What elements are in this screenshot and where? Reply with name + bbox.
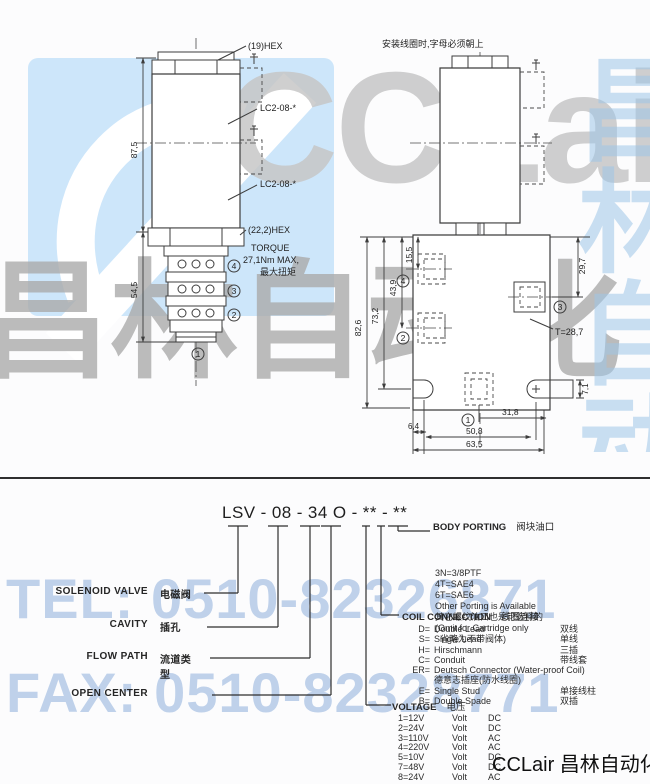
svg-text:2: 2 — [232, 310, 237, 320]
coil-option-cn: 三插 — [560, 645, 596, 655]
voltage-option-unit: Volt — [452, 773, 480, 783]
terminal-mark-icon — [250, 126, 258, 136]
body-porting-option: 4T=SAE4 — [435, 579, 554, 590]
install-note: 安装线圈时,字母必须朝上 — [382, 38, 484, 49]
body-porting-option: 6T=SAE6 — [435, 590, 554, 601]
svg-text:1: 1 — [466, 415, 471, 425]
dim-holes: 50,8 — [466, 426, 483, 436]
hex-top-label: (19)HEX — [248, 41, 283, 51]
svg-text:3: 3 — [558, 302, 563, 312]
label-solenoid-valve-en: SOLENOID VALVE — [0, 586, 148, 601]
dim-total-height: 82,6 — [353, 319, 363, 336]
label-open-center-en: OPEN CENTER — [0, 688, 148, 699]
coil-option-en: Conduit — [434, 655, 556, 665]
coil-option-en: Single Lead — [434, 634, 556, 644]
dim-right-height: 29,7 — [577, 257, 587, 274]
svg-text:1: 1 — [196, 349, 201, 359]
dim-coil-height: 87,5 — [129, 141, 139, 158]
svg-text:3: 3 — [232, 286, 237, 296]
coil-option-code: ER= — [402, 665, 430, 675]
dim-h4: 15,5 — [404, 246, 414, 263]
dim-h3: 43,9 — [388, 279, 398, 296]
coil-connection-options: D= Double Lead 双线 S= Single Lead 单线 H= H… — [402, 624, 596, 706]
port-2-badge: 2 — [228, 309, 240, 321]
coil-option-code: E= — [402, 686, 430, 696]
label-flow-path-cn: 流道类型 — [160, 651, 200, 681]
label-open-center: OPEN CENTER — [0, 688, 200, 699]
coil-connection-title-cn: 线圈连接 — [501, 612, 539, 623]
port-1-badge: 1 — [462, 414, 474, 426]
coil-option-en: Single Stud — [434, 686, 556, 696]
label-cavity-cn: 插孔 — [160, 619, 200, 634]
dim-stub: 7,1 — [581, 383, 590, 395]
coil-option-code: D= — [402, 624, 430, 634]
coil-body — [440, 68, 520, 223]
port-4-badge: 4 — [397, 275, 409, 287]
valve-side-view-drawing: (19)HEX LC2-08-* LC2-08-* (22,2)HEX TORQ… — [100, 30, 350, 410]
cavity-thread-label-1: LC2-08-* — [260, 103, 297, 113]
body-porting-title-cn: 阀块油口 — [516, 522, 554, 533]
svg-text:4: 4 — [232, 261, 237, 271]
coil-option-code: S= — [402, 634, 430, 644]
voltage-title-cn: 电压 — [447, 702, 466, 713]
terminal-mark-icon — [250, 54, 258, 64]
voltage-options: 1=12V Volt DC 2=24V Volt DC 3=110V Volt … — [392, 714, 501, 783]
terminal-mark-icon — [532, 134, 540, 144]
cartridge-body — [164, 246, 228, 342]
port-3-badge: 3 — [228, 285, 240, 297]
voltage-title: VOLTAGE电压 — [392, 699, 501, 713]
coil-option-cn — [560, 675, 596, 685]
voltage-option-code: 8=24V — [398, 773, 444, 783]
label-solenoid-valve-cn: 电磁阀 — [160, 586, 200, 601]
footer-brand: CCLair 昌林自动化 — [492, 748, 650, 777]
coil-option-cn: 带线套 — [560, 655, 596, 665]
coil-connection-section: COIL CONNECTION线圈连接 D= Double Lead 双线 S=… — [402, 609, 596, 706]
voltage-section: VOLTAGE电压 1=12V Volt DC 2=24V Volt DC 3=… — [392, 699, 501, 783]
coil-option-en: Hirschmann — [434, 645, 556, 655]
voltage-title-en: VOLTAGE — [392, 702, 437, 713]
coil-option-cn: 双线 — [560, 624, 596, 634]
dim-center: 31,8 — [502, 407, 519, 417]
dim-h2: 73,2 — [370, 307, 380, 324]
port-1-badge: 1 — [192, 348, 204, 360]
port-4-badge: 4 — [228, 260, 240, 272]
svg-text:2: 2 — [401, 333, 406, 343]
dim-cartridge-height: 54,5 — [129, 281, 139, 298]
coil-option-en: Double Lead — [434, 624, 556, 634]
body-porting-title-en: BODY PORTING — [433, 522, 506, 533]
coil-option-code — [402, 675, 430, 685]
coil-option-cn: 双插 — [560, 696, 596, 706]
body-porting-title: BODY PORTING阀块油口 — [433, 519, 554, 533]
valve-body-block — [413, 235, 550, 410]
dim-width: 63,5 — [466, 439, 483, 449]
torque-label-3: 最大扭矩 — [260, 266, 296, 277]
body-porting-option: 3N=3/8PTF — [435, 568, 554, 579]
valve-body-dimension-drawing: 安装线圈时,字母必须朝上 — [340, 28, 650, 468]
coil-connection-title-en: COIL CONNECTION — [402, 612, 491, 623]
datasheet-page: CCLair 昌林自动化 昌林自动化 TEL: 0510-82326871 FA… — [0, 0, 650, 784]
coil-body — [152, 74, 240, 228]
thread-size-label: T=28,7 — [555, 327, 583, 337]
label-cavity: CAVITY 插孔 — [0, 619, 200, 634]
label-flow-path: FLOW PATH 流道类型 — [0, 651, 200, 681]
coil-option-en: Deutsch Connector (Water-proof Coil) — [434, 665, 556, 675]
coil-option-cn: 单接线柱 — [560, 686, 596, 696]
coil-option-cn — [560, 665, 596, 675]
coil-option-code: C= — [402, 655, 430, 665]
coil-option-code: H= — [402, 645, 430, 655]
label-solenoid-valve: SOLENOID VALVE 电磁阀 — [0, 586, 200, 601]
label-open-center-cn — [160, 688, 200, 699]
hex-bottom-label: (22,2)HEX — [248, 225, 290, 235]
coil-option-cn: 单线 — [560, 634, 596, 644]
coil-option-en: 德意志插座(防水线圈) — [434, 675, 556, 685]
torque-label-2: 27,1Nm MAX, — [243, 255, 299, 265]
label-cavity-en: CAVITY — [0, 619, 148, 634]
coil-connection-title: COIL CONNECTION线圈连接 — [402, 609, 596, 623]
cavity-thread-label-2: LC2-08-* — [260, 179, 297, 189]
label-flow-path-en: FLOW PATH — [0, 651, 148, 681]
port-3-badge: 3 — [554, 301, 566, 313]
dim-edge: 6,4 — [408, 422, 420, 431]
port-2-badge: 2 — [397, 332, 409, 344]
svg-text:4: 4 — [401, 276, 406, 286]
torque-label-1: TORQUE — [251, 243, 289, 253]
terminal-mark-icon — [532, 60, 540, 70]
